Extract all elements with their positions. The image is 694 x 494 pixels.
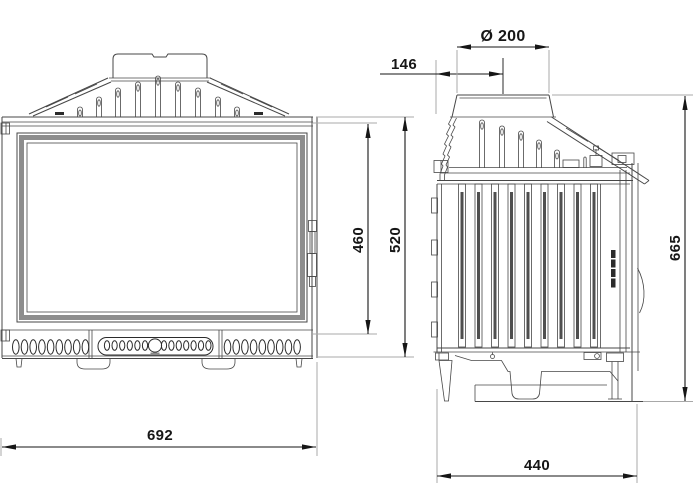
dimension-depth: 440 — [437, 389, 637, 483]
ribs — [459, 184, 598, 347]
convection-fins-front — [78, 76, 240, 117]
front-leg — [439, 361, 452, 402]
dimension-front-height-value: 520 — [387, 227, 404, 253]
feet-front — [16, 359, 302, 370]
base-profile — [455, 356, 618, 400]
damper-plate — [98, 338, 213, 356]
dimension-front-width: 692 — [1, 362, 317, 456]
dimension-overall-height: 665 — [552, 95, 693, 402]
rib-panel-side — [432, 184, 601, 352]
dimension-front-width-value: 692 — [147, 427, 173, 444]
side-brand-mark — [611, 250, 616, 288]
convection-fins-side — [480, 120, 587, 168]
dimension-depth-value: 440 — [524, 457, 550, 474]
glass-pane — [27, 143, 297, 312]
dimension-flue-diameter-value: Ø 200 — [480, 28, 525, 45]
front-view — [1, 54, 317, 369]
dimensions: 692 460 520 146 — [1, 28, 693, 483]
drawing-canvas: 692 460 520 146 — [0, 0, 694, 494]
vent-slots-left — [13, 340, 89, 354]
rear-leg — [607, 353, 624, 399]
technical-drawing: 692 460 520 146 — [0, 0, 694, 494]
flue-collar-side — [450, 95, 556, 117]
hood-side — [440, 117, 649, 184]
rear-panel-side — [611, 153, 644, 402]
dimension-flue-offset-value: 146 — [391, 56, 417, 73]
vent-grille — [2, 330, 313, 359]
top-plate-side — [434, 146, 633, 184]
vent-slots-right — [224, 340, 300, 354]
glass-door — [17, 133, 317, 322]
dimension-flue-offset: 146 — [380, 56, 503, 114]
side-view — [432, 95, 650, 402]
door-frame — [22, 138, 303, 318]
dimension-door-height-value: 460 — [350, 227, 367, 253]
damper-knob[interactable] — [148, 339, 161, 352]
dimension-overall-height-value: 665 — [667, 235, 684, 261]
base-side — [434, 348, 644, 402]
damper-label-mark — [151, 353, 160, 356]
dimension-door-height: 460 — [313, 123, 377, 334]
